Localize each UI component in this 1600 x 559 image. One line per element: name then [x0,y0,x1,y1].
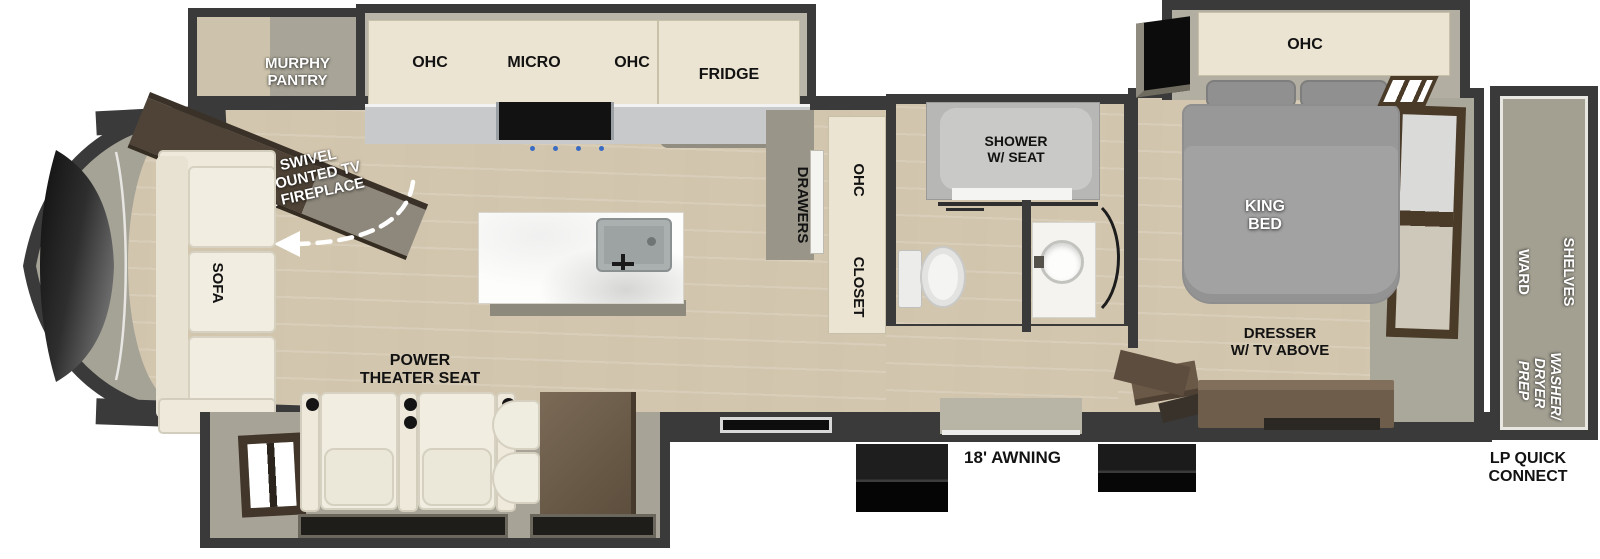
bedroom-floor-mat [1264,418,1380,430]
theater-seat-label: POWER THEATER SEAT [330,352,510,388]
bathroom-door-swing [1090,200,1130,315]
sofa-cushion [188,251,276,333]
burner-knob [576,146,581,151]
shower-door-handle [946,208,984,211]
washer-dryer-label: WASHER/ DRYER PREP [1501,329,1563,436]
bathroom-faucet [1034,256,1044,268]
cupholder [306,398,319,411]
floorplan-canvas: OHC MICRO OHC FRIDGE DRAWERS OHC CLOSET … [0,0,1600,559]
cupholder [404,398,417,411]
murphy-pantry-label: MURPHY PANTRY [240,56,355,90]
dinette-chair [492,452,540,504]
theater-seat-cushion [324,448,394,506]
burner-knob [599,146,604,151]
burner-knob [530,146,535,151]
ohc-vertical-label: OHC [846,135,866,225]
sofa-label: SOFA [207,248,225,318]
toilet-bowl [920,246,966,308]
bottom-wall-window [720,417,832,433]
shelves-label: SHELVES [1556,217,1576,327]
shower-ledge [952,188,1072,200]
entry-threshold [942,430,1080,435]
sink-drain [647,237,656,246]
island-sink [596,218,672,272]
bathroom-divider-wall [1022,200,1031,332]
drawers-label: DRAWERS [788,150,810,260]
dinette-table [540,392,636,514]
sink-faucet-stem [621,254,625,270]
lp-quick-connect-label: LP QUICK CONNECT [1460,450,1596,486]
drawers-door [810,150,824,254]
toilet-tank [898,250,922,308]
bathroom-sink [1040,240,1084,284]
floor-mat [530,514,656,538]
theater-seat-cushion [422,448,492,506]
bedroom-front-window [1136,16,1190,98]
dresser-label: DRESSER W/ TV ABOVE [1190,326,1370,360]
entry-door-landing [940,398,1082,434]
ohc-left-label: OHC [385,54,475,72]
entry-steps-left [856,444,948,512]
cooktop [496,102,614,140]
awning-label: 18' AWNING [940,448,1085,467]
shower-label: SHOWER W/ SEAT [946,134,1086,165]
entry-steps-right [1098,444,1196,492]
sofa-cushion [188,166,276,248]
dinette-chair [492,400,540,450]
cupholder [404,416,417,429]
fridge-label: FRIDGE [658,66,800,84]
shower-glass [938,202,1098,206]
closet-label: CLOSET [846,232,866,342]
ward-label: WARD [1511,232,1531,312]
floor-mat [298,514,508,538]
micro-label: MICRO [489,54,579,72]
king-bed-label: KING BED [1210,198,1320,234]
bedroom-ohc-label: OHC [1240,36,1370,54]
burner-knob [553,146,558,151]
sofa-back [156,156,188,418]
slideout-window [238,432,306,517]
